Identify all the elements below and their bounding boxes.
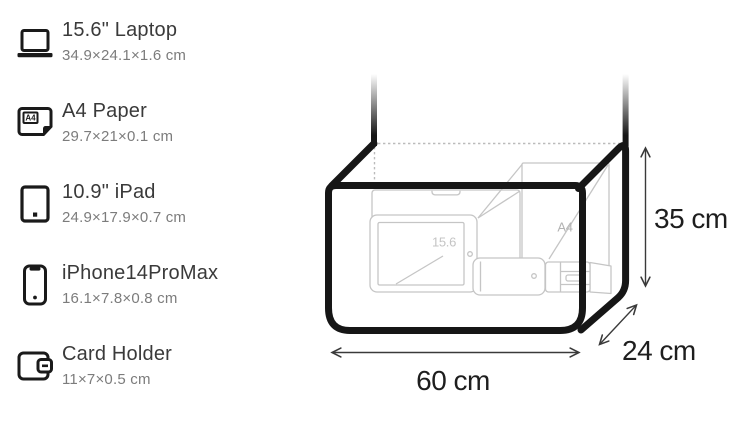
bag-diagram: 15.6 A4 35 cm 24 cm 60 cm: [0, 0, 750, 426]
width-dimension-label: 60 cm: [416, 365, 490, 396]
bag-straps: [371, 74, 629, 146]
height-dimension-label: 35 cm: [654, 203, 728, 234]
depth-dimension-label: 24 cm: [622, 335, 696, 366]
interior-ipad: [370, 215, 477, 292]
a4-paper-tag: A4: [557, 220, 572, 235]
interior-card-holder: [546, 262, 612, 294]
dimension-infographic: 15.6" Laptop 34.9×24.1×1.6 cm A4 A4 Pape…: [0, 0, 750, 426]
laptop-size-tag: 15.6: [432, 235, 456, 250]
interior-iphone: [473, 258, 545, 295]
